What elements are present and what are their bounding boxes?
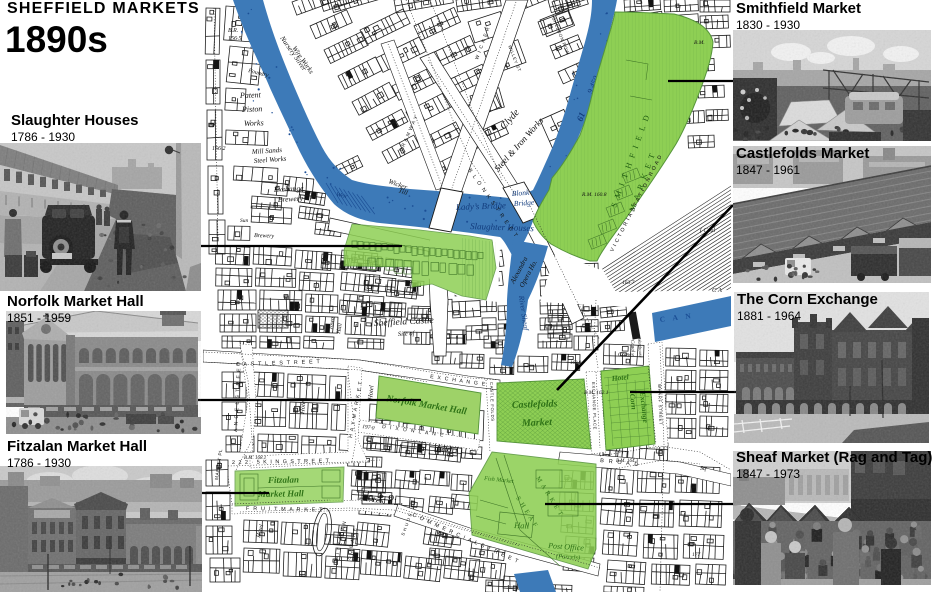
svg-text:Corn: Corn <box>628 393 639 410</box>
svg-text:Castlefolds: Castlefolds <box>512 398 558 411</box>
svg-text:Brewery: Brewery <box>278 194 304 204</box>
svg-text:Market: Market <box>521 417 554 429</box>
svg-text:Patent: Patent <box>239 90 262 100</box>
svg-text:R.M. 160.8: R.M. 160.8 <box>581 192 607 198</box>
svg-text:177: 177 <box>692 552 701 558</box>
svg-text:Cranes: Cranes <box>618 352 634 358</box>
svg-text:156·5: 156·5 <box>228 36 242 42</box>
svg-text:Sq: Sq <box>700 466 706 472</box>
svg-text:B.R.: B.R. <box>228 28 238 34</box>
svg-text:Piston: Piston <box>241 104 263 114</box>
svg-text:Works: Works <box>244 118 264 128</box>
svg-text:Hall: Hall <box>513 520 530 531</box>
svg-text:B.M. 162.1: B.M. 162.1 <box>584 390 609 396</box>
svg-text:156·2: 156·2 <box>212 146 226 152</box>
svg-text:Fitzalan: Fitzalan <box>267 474 299 485</box>
svg-text:B.M.: B.M. <box>694 40 705 46</box>
svg-text:B.M. 164.3: B.M. 164.3 <box>616 459 639 464</box>
svg-text:B.M. 168.1: B.M. 168.1 <box>244 456 266 461</box>
svg-text:Blonk: Blonk <box>512 188 531 198</box>
svg-text:G. P. O.: G. P. O. <box>368 493 397 502</box>
svg-text:Exchange: Exchange <box>273 183 305 194</box>
svg-text:Canal: Canal <box>629 340 635 353</box>
svg-text:Brewery: Brewery <box>254 233 275 240</box>
svg-text:163·7: 163·7 <box>622 280 635 286</box>
svg-text:C A: C A <box>712 287 722 294</box>
svg-text:Bridge: Bridge <box>514 198 536 208</box>
svg-text:Sun: Sun <box>240 218 249 224</box>
svg-text:167: 167 <box>360 307 368 312</box>
svg-text:Hotel: Hotel <box>435 445 452 454</box>
svg-text:Site of: Site of <box>398 330 416 338</box>
